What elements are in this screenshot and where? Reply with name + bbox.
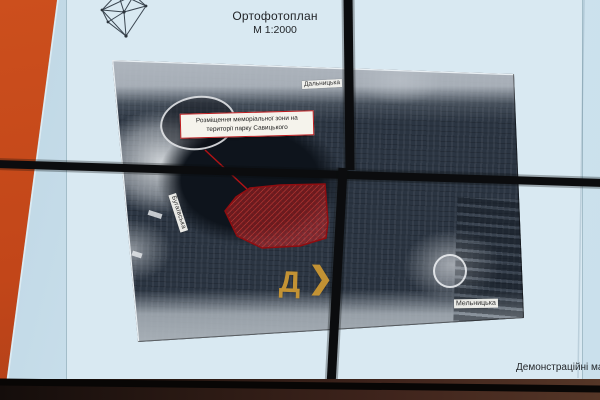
video-wall-photo: Ортофотоплан М 1:2000: [0, 0, 600, 400]
round-structure: [433, 254, 467, 288]
watermark-chevron: ❯: [308, 261, 334, 296]
slide-scale: М 1:2000: [210, 24, 340, 36]
city-wireframe-logo-icon: [88, 0, 160, 44]
street-label-melnytska: Мельницька: [454, 299, 498, 309]
floor: [0, 379, 600, 400]
memorial-zone-annotation: Розміщення меморіальної зони на територі…: [180, 110, 315, 138]
slide-title: Ортофотоплан: [210, 9, 340, 23]
watermark-letter-d: Д: [278, 266, 301, 301]
footer-caption: Демонстраційні мате: [516, 362, 600, 373]
